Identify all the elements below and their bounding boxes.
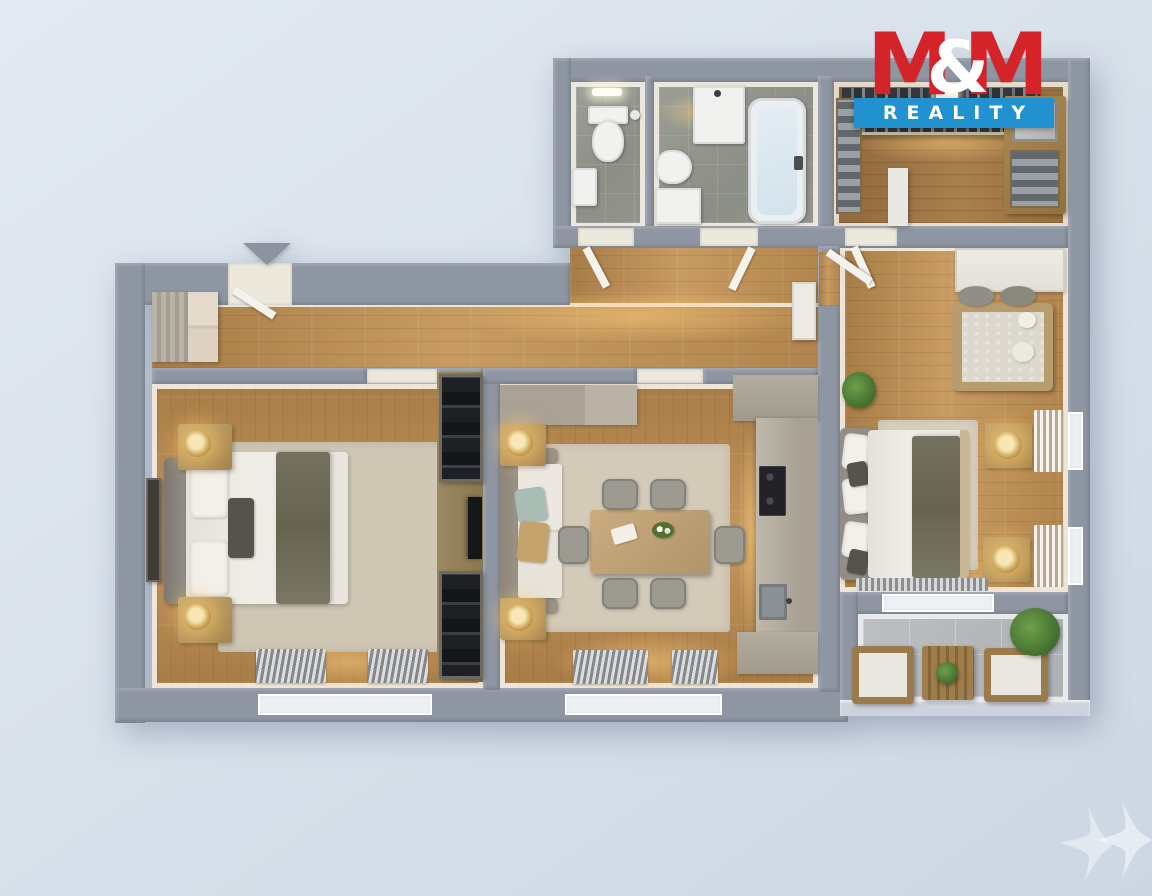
dining-table-flowers (652, 522, 674, 538)
bedroom-left-lamp-top (184, 430, 211, 457)
dining-table (590, 510, 710, 574)
corridor-tall-cabinet (792, 282, 816, 340)
kitchen-upper-cabinet (733, 375, 818, 421)
toilet-room-door-threshold (578, 228, 634, 246)
wall-bedroom-living (483, 368, 500, 690)
sofa-pillow-tan (516, 521, 550, 564)
bedroom-right-bed-frame-edge (960, 430, 969, 578)
entrance-door-threshold (228, 263, 292, 305)
kitchen-faucet (786, 598, 792, 604)
balcony-potted-plant (1010, 608, 1060, 656)
balcony-armchair-right (984, 648, 1048, 702)
cooktop-burner-1 (765, 472, 775, 482)
bathtub-basin (757, 107, 797, 215)
balcony-door-sill (882, 594, 994, 612)
closet-folded-clothes (1010, 150, 1060, 208)
toilet-brush (630, 110, 640, 120)
bedroom-right-lamp-bottom (992, 545, 1020, 573)
entrance-arrow-icon (243, 243, 291, 265)
wall-left-outer (115, 263, 145, 723)
washing-machine (655, 188, 701, 224)
bedroom-left-wardrobe-bottom (439, 571, 483, 679)
bedroom-left-radiator-a (256, 649, 326, 683)
hallway-shoe-cabinet-side (152, 292, 188, 362)
living-lamp-bottom (506, 604, 533, 631)
toilet-bowl (592, 120, 624, 162)
kitchen-lower-cabinet (737, 632, 818, 674)
living-sideboard (500, 385, 637, 425)
bedroom-left-pillow-bottom (190, 540, 228, 596)
living-lamp-top (506, 429, 533, 456)
bedroom-right-window-bottom (1068, 527, 1083, 585)
closet-door-threshold (845, 228, 897, 246)
bathroom-door-threshold (700, 228, 758, 246)
living-radiator-b (672, 650, 718, 684)
kitchen-sink (759, 584, 787, 620)
bedroom-left-wall-art (146, 478, 161, 582)
wall-living-top-a (483, 368, 637, 384)
crib-toy-1 (1018, 312, 1036, 328)
bedroom-right-curtain-top (1034, 410, 1064, 472)
bedroom-right-plant (842, 372, 876, 408)
wall-bedroom-left-top-a (152, 368, 367, 384)
dining-chair-1 (602, 479, 638, 510)
hallway-floor (152, 303, 818, 368)
washbasin-faucet (714, 90, 721, 97)
wall-bathroom-closet (818, 76, 834, 228)
mm-reality-logo: M & M REALITY (854, 28, 1054, 128)
floor-plan-render: M & M REALITY (0, 0, 1152, 896)
living-room-window (565, 694, 722, 715)
bedroom-right-window-top (1068, 412, 1083, 470)
dining-chair-2 (650, 479, 686, 510)
wall-top-left (553, 58, 571, 248)
baby-crib (953, 303, 1053, 391)
bathtub-mixer (794, 156, 803, 170)
wall-main-bottom (115, 688, 848, 722)
sofa-back (500, 460, 520, 602)
dining-chair-5 (558, 526, 589, 564)
sofa-pillow-teal (514, 486, 548, 524)
living-radiator-a (573, 650, 648, 684)
wall-right-outer (1068, 58, 1090, 708)
dining-chair-4 (650, 578, 686, 609)
bedroom-right-lamp-top (994, 431, 1022, 459)
cooktop-burner-2 (765, 496, 775, 506)
balcony-armchair-left (852, 646, 914, 704)
crib-plush-right (1000, 286, 1036, 306)
toilet-room-basin (572, 168, 597, 206)
bedroom-left-door-threshold (367, 369, 437, 383)
hallway-shoe-cabinet-drawers (188, 292, 218, 362)
corridor-floor (570, 246, 818, 308)
crib-toy-2 (1012, 342, 1034, 362)
logo-reality-banner: REALITY (854, 98, 1054, 128)
bedroom-left-headboard (164, 458, 186, 604)
apartment-floor-plan (0, 0, 1152, 896)
balcony-table-plant (936, 662, 958, 684)
living-door-threshold (637, 369, 703, 383)
bedroom-right-accent-pillow-1 (846, 460, 870, 487)
bedroom-left-throw-blanket (276, 452, 330, 604)
closet-partition-wall (888, 168, 908, 226)
dining-chair-6 (714, 526, 745, 564)
bedroom-left-window (258, 694, 432, 715)
bedroom-right-throw (912, 436, 960, 578)
sparkle-watermark-icon (1052, 800, 1152, 890)
bidet (656, 150, 692, 184)
wall-wc-bathroom (645, 76, 654, 228)
bedroom-left-lamp-bottom (184, 603, 211, 630)
wall-living-bedroom-right (818, 246, 840, 692)
dining-chair-3 (602, 578, 638, 609)
bedroom-left-wall-tv (468, 497, 482, 559)
logo-mm-wordmark: M & M (854, 28, 1054, 102)
bedroom-left-accent-pillow (228, 498, 254, 558)
toilet-room-ceiling-light (592, 88, 622, 96)
logo-ampersand: & (927, 32, 982, 102)
bedroom-right-radiator (856, 578, 988, 591)
bedroom-left-wardrobe-top (439, 374, 483, 482)
bedroom-left-pillow-top (190, 462, 228, 518)
crib-plush-left (958, 286, 994, 306)
bedroom-left-radiator-b (368, 649, 428, 683)
bedroom-right-curtain-bottom (1034, 525, 1064, 587)
